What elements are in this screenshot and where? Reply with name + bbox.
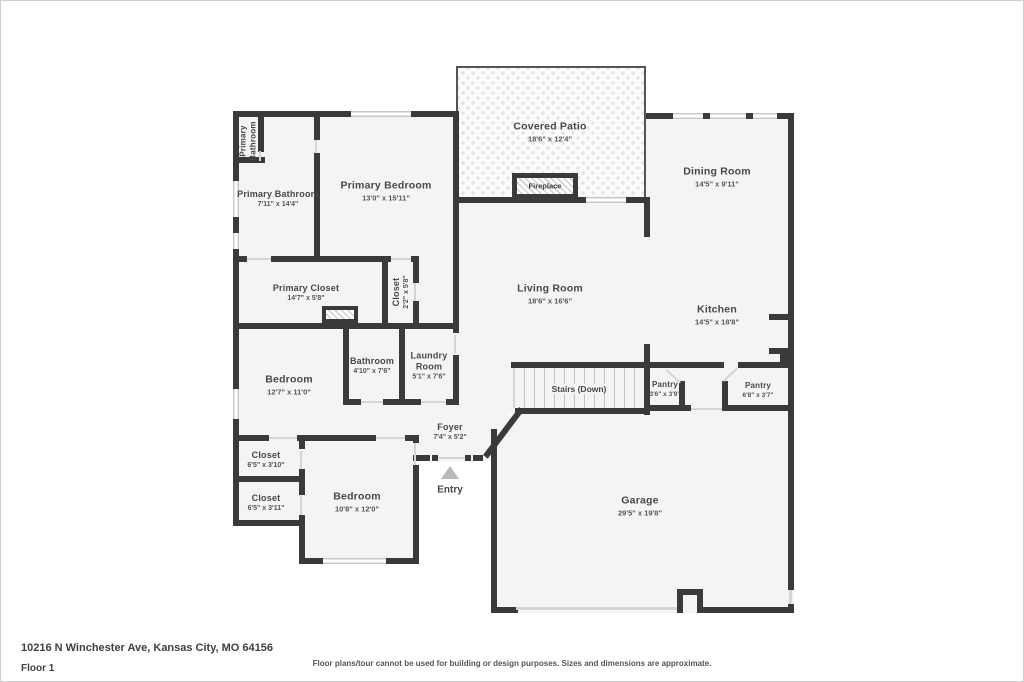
- room-label-closet-1: Closet6'5" x 3'10": [247, 450, 284, 470]
- window: [233, 233, 239, 249]
- window: [323, 558, 386, 564]
- room-label-living-room: Living Room18'6" x 16'6": [517, 283, 583, 306]
- room-label-primary-bathroom-wc: Primary Bathroom: [238, 112, 257, 170]
- window: [710, 113, 746, 119]
- dining-floor: [646, 113, 794, 203]
- window: [753, 113, 777, 119]
- room-label-closet-2: Closet6'5" x 3'11": [248, 493, 285, 513]
- window: [586, 197, 626, 203]
- room-label-covered-patio: Covered Patio18'6" x 12'4": [513, 121, 586, 144]
- room-label-garage: Garage29'5" x 19'8": [618, 495, 662, 518]
- entry-arrow-icon: [441, 466, 459, 479]
- room-label-fireplace: Fireplace: [529, 182, 562, 191]
- room-label-pantry-2: Pantry6'8" x 3'7": [743, 381, 774, 399]
- room-label-primary-bathroom: Primary Bathroom7'11" x 14'4": [237, 189, 319, 209]
- room-label-closet-vertical: Closet2'2" x 5'8": [391, 275, 411, 308]
- closet-hatch-box: [322, 306, 358, 323]
- room-label-pantry-1: Pantry3'6" x 3'9": [650, 380, 681, 398]
- floor-plan-page: Primary Bathroom Primary Bathroom7'11" x…: [0, 0, 1024, 682]
- property-address: 10216 N Winchester Ave, Kansas City, MO …: [21, 642, 273, 654]
- room-label-entry: Entry: [437, 485, 463, 496]
- floor-label: Floor 1: [21, 663, 54, 674]
- room-label-kitchen: Kitchen14'5" x 18'8": [695, 304, 739, 327]
- window: [673, 113, 703, 119]
- room-label-dining-room: Dining Room14'5" x 9'11": [683, 166, 751, 189]
- window: [233, 389, 239, 419]
- room-label-bedroom-2: Bedroom10'8" x 12'0": [333, 491, 381, 514]
- room-label-foyer: Foyer7'4" x 5'2": [433, 422, 466, 442]
- window: [351, 111, 411, 117]
- room-label-bedroom-1: Bedroom12'7" x 11'0": [265, 374, 313, 397]
- room-label-bathroom: Bathroom4'10" x 7'6": [350, 356, 394, 376]
- disclaimer-text: Floor plans/tour cannot be used for buil…: [313, 659, 712, 668]
- room-label-primary-bedroom: Primary Bedroom13'0" x 15'11": [340, 180, 431, 203]
- room-label-stairs-down: Stairs (Down): [549, 384, 610, 394]
- room-label-laundry-room: Laundry Room5'1" x 7'6": [405, 351, 453, 382]
- room-label-primary-closet: Primary Closet14'7" x 5'8": [273, 283, 339, 303]
